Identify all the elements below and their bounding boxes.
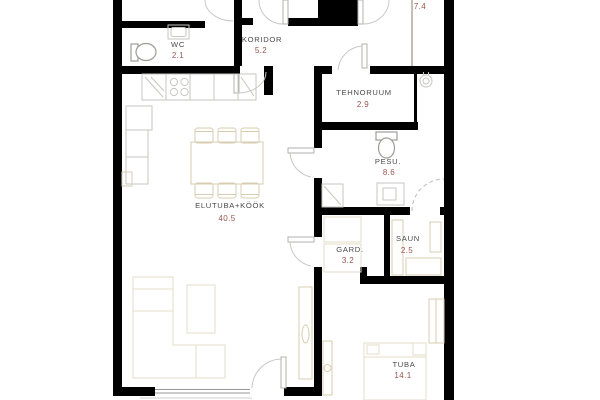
- sofa: [133, 277, 225, 378]
- door-arc-terrace: [252, 359, 281, 388]
- door-leaf-tehnoruum: [362, 44, 367, 68]
- dining-chair: [218, 128, 236, 143]
- room-label-tehnoruum: TEHNORUUM: [336, 88, 392, 97]
- room-label-koridor: KORIDOR: [242, 35, 282, 44]
- room-area-hall: 7.4: [414, 2, 426, 11]
- stove-burner-icon: [170, 88, 177, 95]
- room-area-tuba: 14.1: [394, 371, 411, 380]
- wall-pesu-south-end: [440, 207, 444, 215]
- fridge-icon: [126, 106, 152, 130]
- room-label-pesu: PESU.: [375, 157, 401, 166]
- room-label-wc: WC: [171, 40, 185, 49]
- door-arc-entrance: [259, 0, 283, 24]
- door-arc-wc: [238, 72, 266, 93]
- coffee-table: [187, 285, 215, 333]
- floor-drain-icon: [420, 75, 432, 87]
- pesu-basin-icon: [383, 188, 396, 200]
- wall-right-outer: [444, 0, 454, 400]
- wall-tehnoruum-south: [314, 122, 418, 130]
- sideboard: [299, 287, 312, 379]
- door-arc-pesu: [290, 153, 311, 177]
- stove-burner-icon: [181, 78, 188, 85]
- wall-bottom-a: [113, 387, 155, 396]
- floor-plan: WC 2.1 KORIDOR 5.2 TEHNORUUM 2.9 PESU. 8…: [0, 0, 600, 400]
- tuba-cabinet-handle-icon: [324, 365, 331, 372]
- wc-toilet-bowl-icon: [136, 44, 156, 61]
- wc-sink-basin-icon: [171, 28, 186, 37]
- windows: [140, 390, 252, 399]
- kitchen-sink-diagonal2-icon: [151, 77, 164, 91]
- sauna-bench: [430, 222, 441, 252]
- door-arc-topleft-room: [205, 0, 233, 21]
- door-leaf-front: [358, 0, 363, 24]
- sauna-bench: [406, 258, 441, 275]
- room-label-elutuba-kook: ELUTUBA+KÖÖK: [195, 201, 265, 210]
- dining-table: [191, 142, 263, 184]
- door-arc-tehnoruum: [338, 46, 362, 70]
- pesu-toilet-bowl-icon: [379, 138, 395, 158]
- floor-plan-canvas: WC 2.1 KORIDOR 5.2 TEHNORUUM 2.9 PESU. 8…: [0, 0, 600, 400]
- wall-saun-west: [384, 215, 390, 276]
- wall-gard-saun-south: [360, 276, 444, 284]
- room-area-gard: 3.2: [342, 256, 354, 265]
- wall-entry-stub: [234, 18, 253, 25]
- bed-pillow-icon: [367, 345, 379, 354]
- wall-entry-top: [288, 18, 358, 26]
- dining-chair: [195, 183, 213, 198]
- dining-chair: [241, 128, 259, 143]
- door-arc-gard: [290, 242, 311, 266]
- wall-bottom-b: [284, 387, 322, 396]
- stove-burner-icon: [181, 88, 188, 95]
- room-area-elutuba-kook: 40.5: [218, 214, 235, 223]
- dining-chair: [218, 183, 236, 198]
- wall-divider-a: [314, 70, 322, 148]
- washing-machine-diagonal: [324, 186, 341, 205]
- room-label-saun: SAUN: [396, 234, 420, 243]
- wall-kitchen-stub: [264, 66, 273, 95]
- door-leaf-pesu: [288, 148, 314, 153]
- walls: [113, 0, 454, 400]
- floor-drain-inner-icon: [423, 78, 429, 84]
- room-label-gard: GARD.: [336, 245, 364, 254]
- dining-chair: [241, 183, 259, 198]
- room-area-tehnoruum: 2.9: [357, 100, 369, 109]
- pesu-basin-counter: [377, 183, 404, 205]
- nightstand: [413, 343, 426, 355]
- door-arc-saun-dashed: [412, 179, 444, 211]
- wall-pesu-south: [314, 207, 410, 215]
- wall-left-outer: [113, 0, 122, 396]
- wall-koridor-south-b: [370, 66, 444, 74]
- room-area-koridor: 5.2: [255, 46, 267, 55]
- wall-tehnoruum-east-thin: [414, 74, 417, 122]
- room-area-wc: 2.1: [172, 51, 184, 60]
- sideboard-handle-icon: [302, 325, 309, 343]
- stove-burner-icon: [170, 78, 177, 85]
- wall-wc-south: [113, 66, 240, 74]
- wall-entry-top-block: [318, 0, 358, 18]
- wall-divider-c: [314, 267, 322, 396]
- dining-chair: [195, 128, 213, 143]
- room-area-saun: 2.5: [401, 246, 413, 255]
- gard-closet-shelf: [324, 217, 361, 242]
- wall-topleft-room-bottom: [113, 21, 205, 28]
- door-leaf-entrance: [283, 0, 288, 24]
- door-leaf-gard: [288, 237, 314, 242]
- room-label-tuba: TUBA: [392, 360, 415, 369]
- wall-wc-east: [234, 0, 242, 66]
- room-area-pesu: 8.6: [383, 168, 395, 177]
- door-arc-front: [363, 0, 389, 24]
- door-leaf-terrace: [281, 357, 286, 388]
